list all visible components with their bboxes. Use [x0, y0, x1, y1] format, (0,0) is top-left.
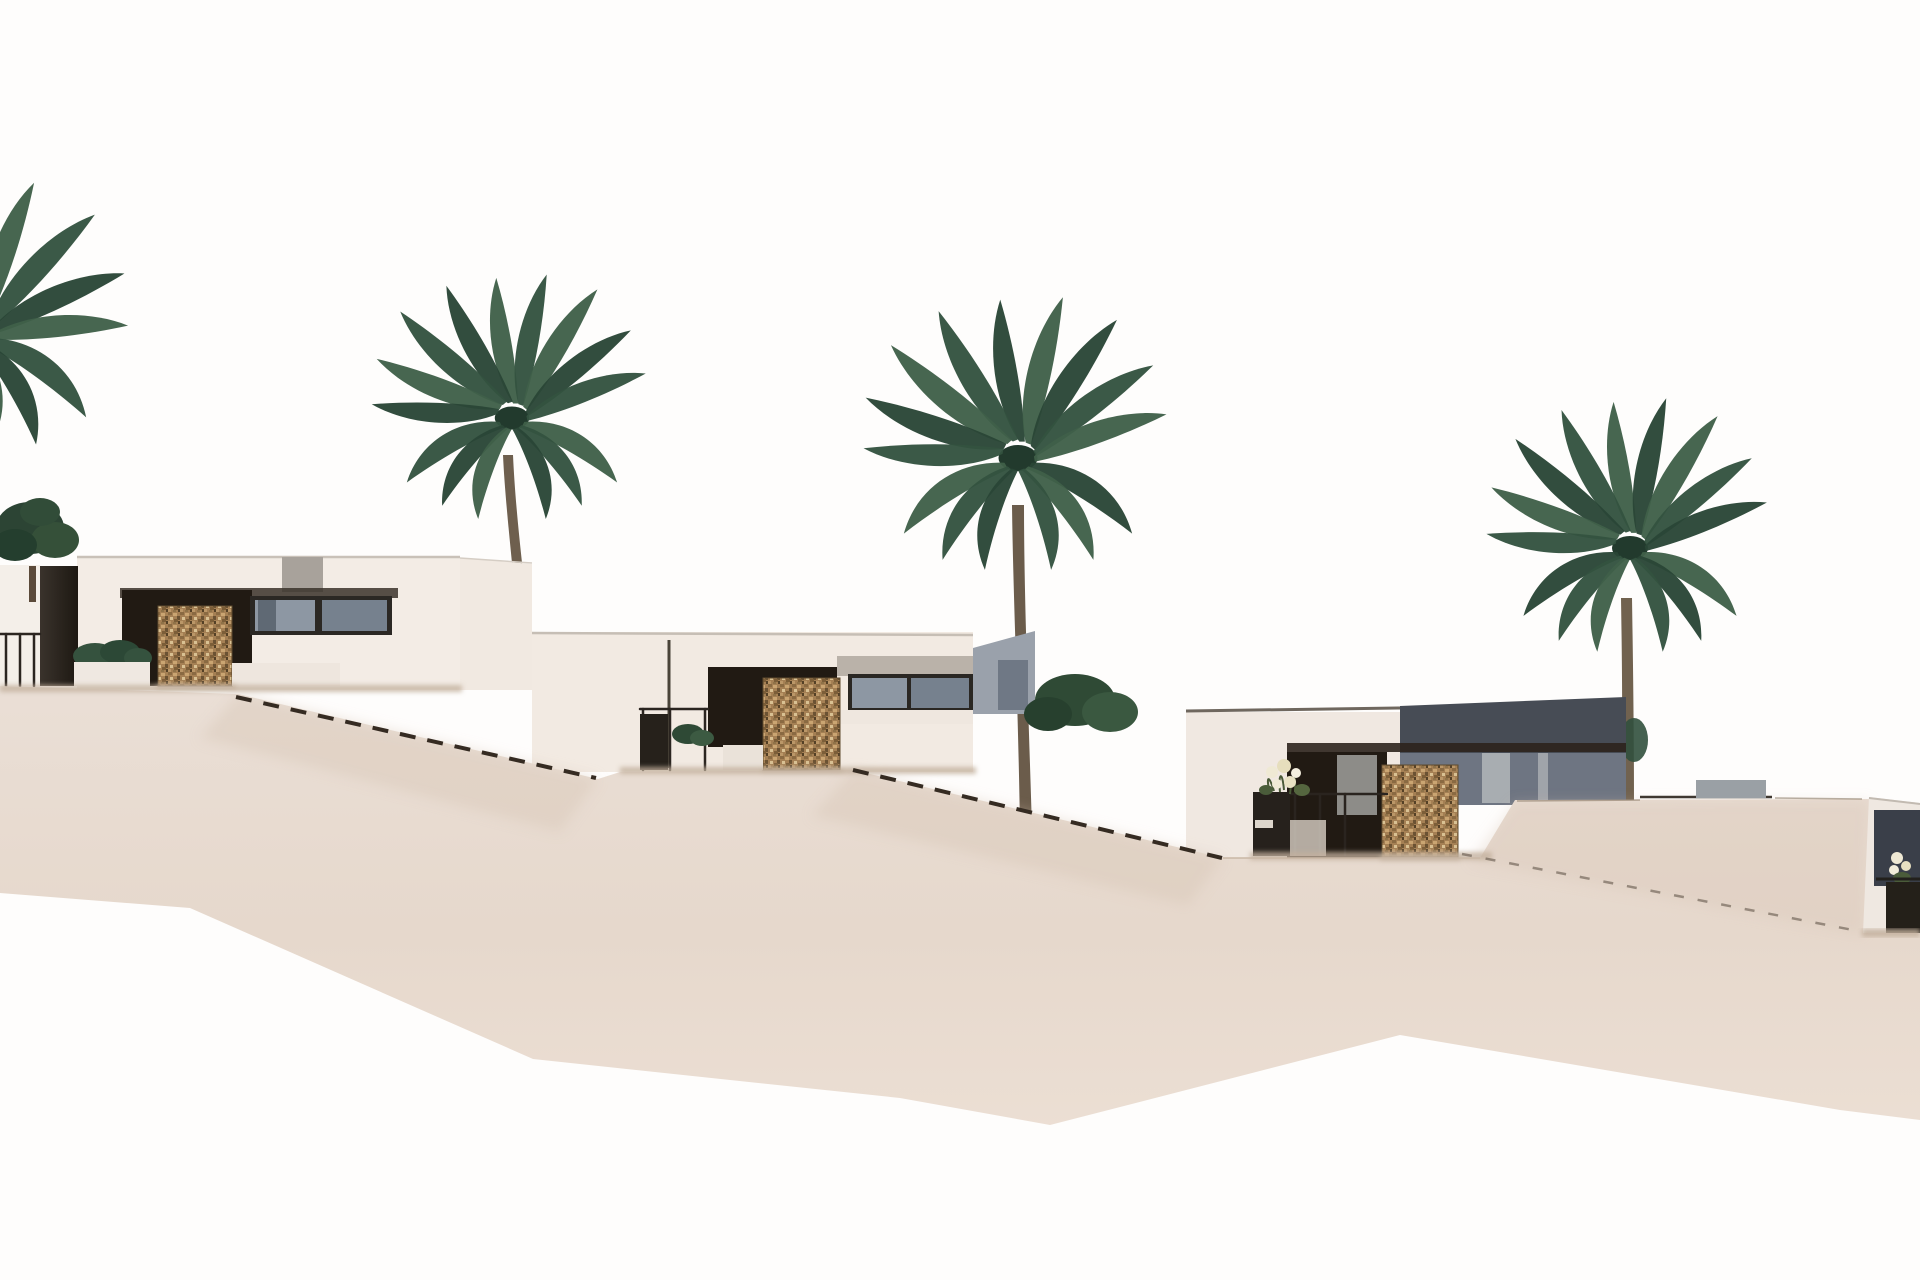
- villa-1: [0, 557, 532, 690]
- villa-1-right-wing: [460, 558, 532, 690]
- render-canvas: [0, 0, 1920, 1280]
- window-glass: [852, 678, 907, 708]
- villa-4-planter: [1886, 882, 1920, 933]
- villa-1-windows: [250, 596, 392, 635]
- villa-3-door-stripe: [1482, 753, 1510, 803]
- villa-2-stone-panel: [763, 678, 840, 770]
- villa-1-pillar: [40, 566, 78, 686]
- window-glass: [322, 600, 387, 631]
- window-glass: [911, 678, 969, 708]
- villa-3-bench: [1290, 820, 1326, 856]
- villa-2-wing-glass: [998, 660, 1028, 710]
- villa-3-door: [1337, 755, 1377, 815]
- villa-3-door-stripe: [1538, 753, 1548, 803]
- villa-1-planter-wall: [74, 662, 150, 686]
- villa-1-clerestory-box: [282, 557, 323, 592]
- villa-1-low-wall: [232, 663, 340, 686]
- villa-2-eave-shadow: [837, 656, 973, 676]
- villa-4: [1862, 797, 1920, 937]
- villa-2: [532, 631, 1035, 772]
- garden-slab: [1696, 780, 1766, 798]
- villa-1-railing: [0, 634, 40, 686]
- villa-2-windows: [848, 674, 973, 712]
- villa-2-parapet: [837, 710, 973, 724]
- villa-2-pillar: [640, 714, 668, 770]
- villa-3-stone-panel: [1382, 765, 1458, 857]
- villa-1-stone-panel: [158, 606, 232, 686]
- villa-4-ground-shadow: [1862, 929, 1920, 937]
- window-glass-pane: [258, 600, 276, 631]
- tree-trunk: [29, 566, 36, 602]
- villa-2-bench: [723, 745, 763, 770]
- villa-3-eave-shadow: [1287, 743, 1626, 752]
- villa-3-planter-highlight: [1255, 820, 1273, 828]
